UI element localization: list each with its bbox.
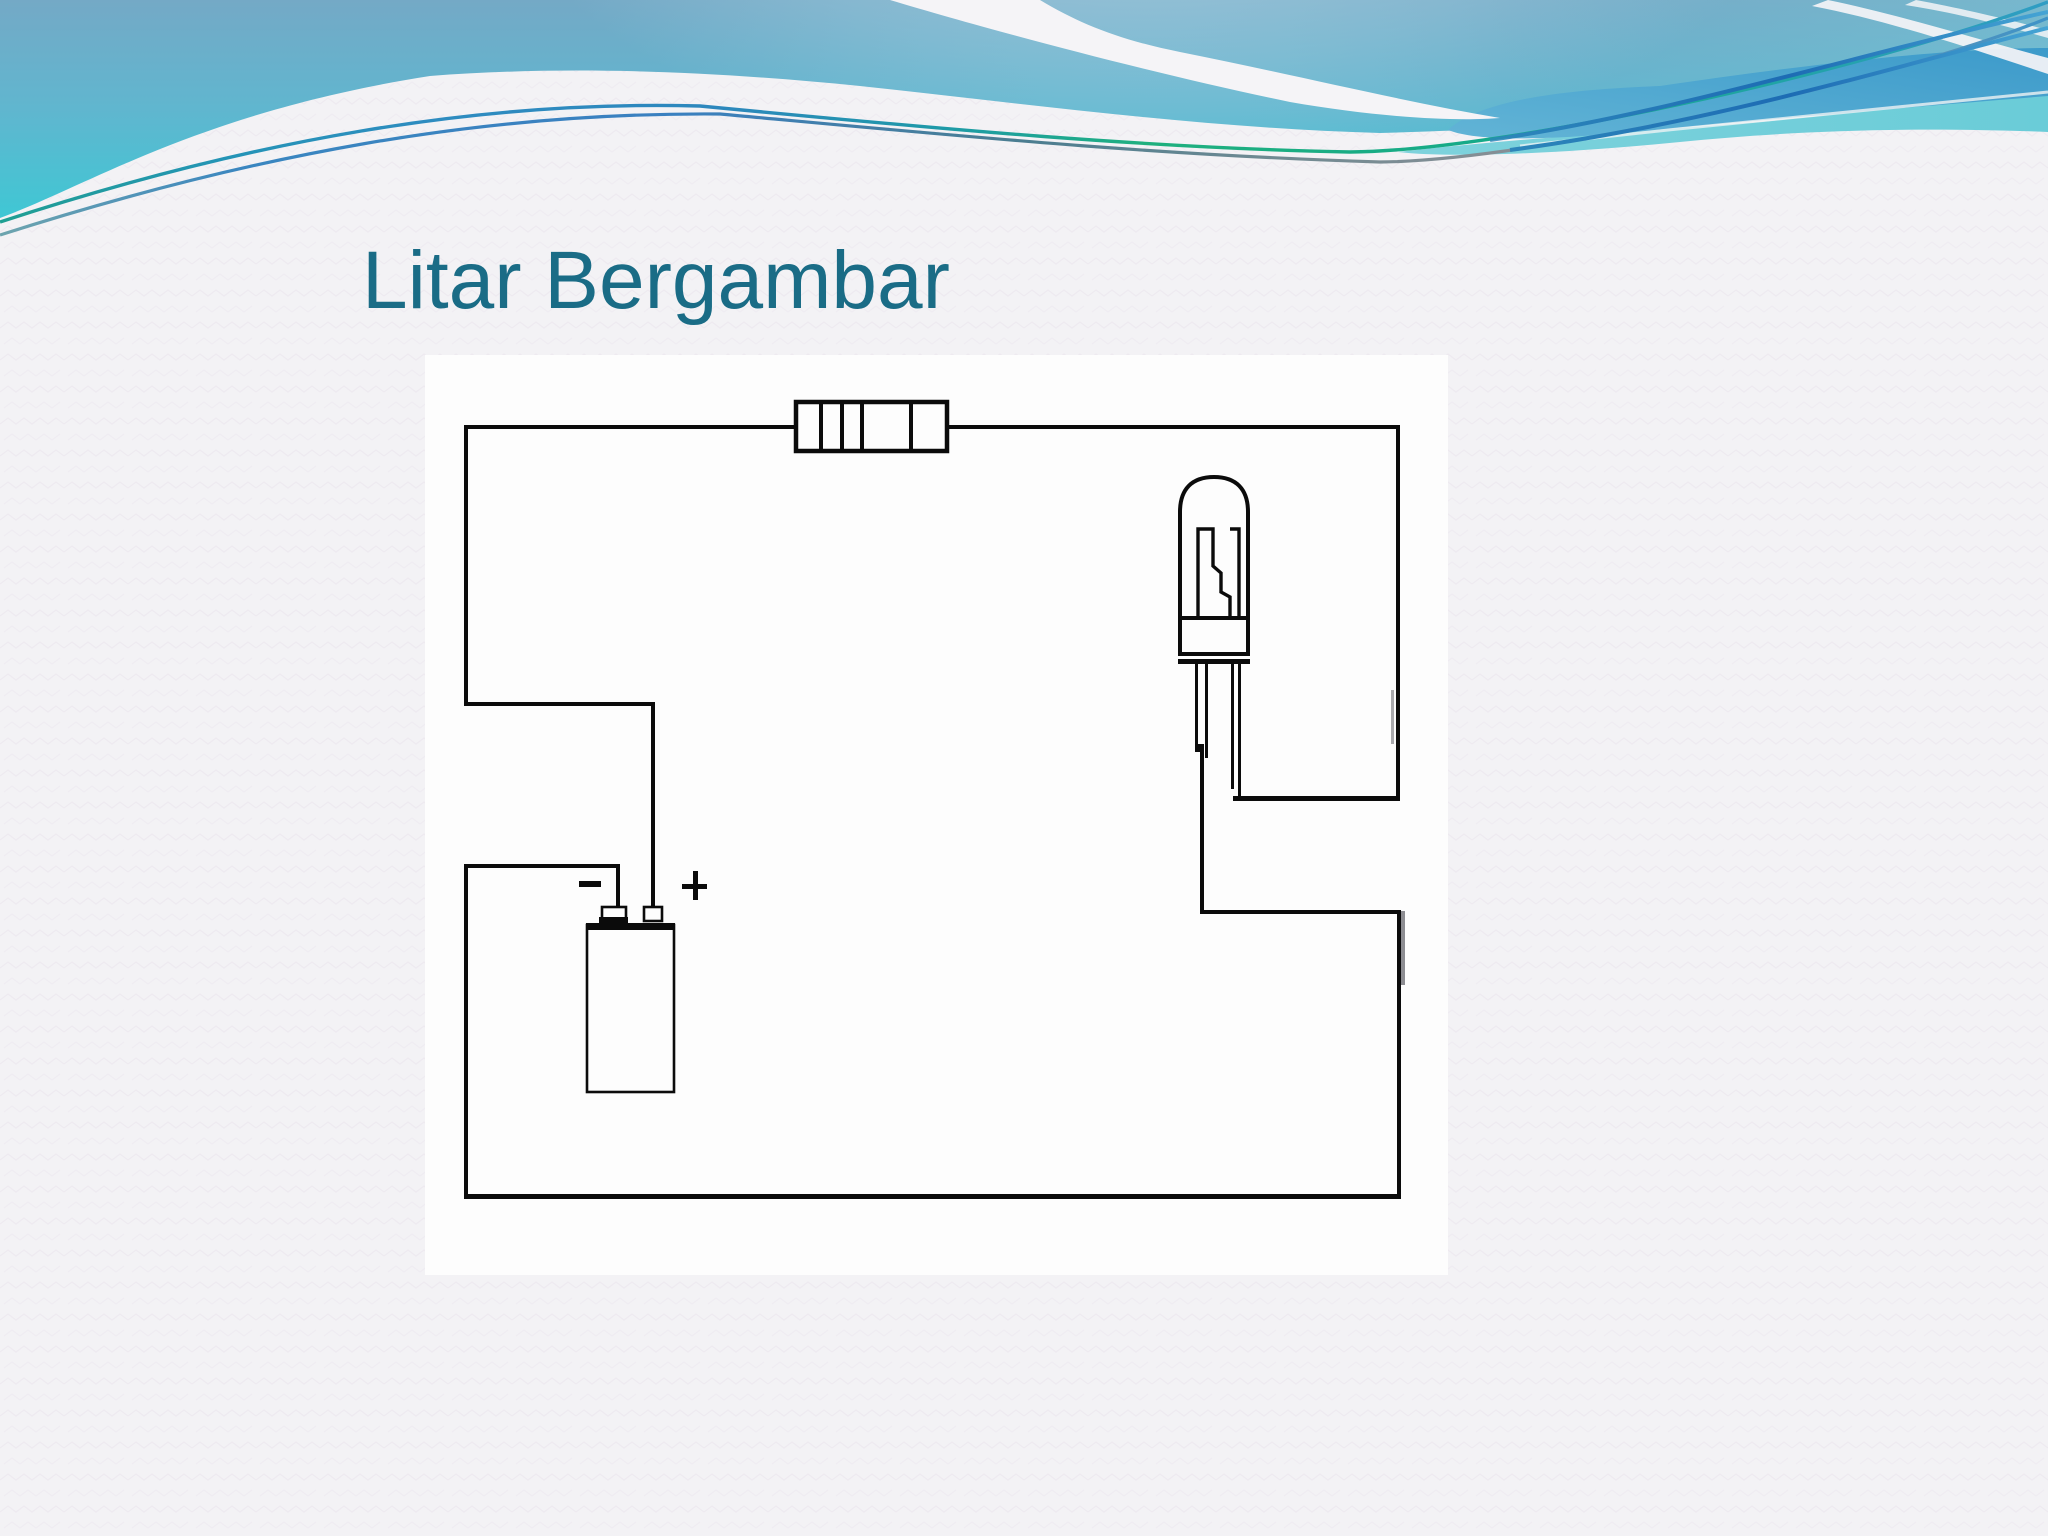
svg-text:Litar Bergambar: Litar Bergambar	[362, 235, 950, 326]
